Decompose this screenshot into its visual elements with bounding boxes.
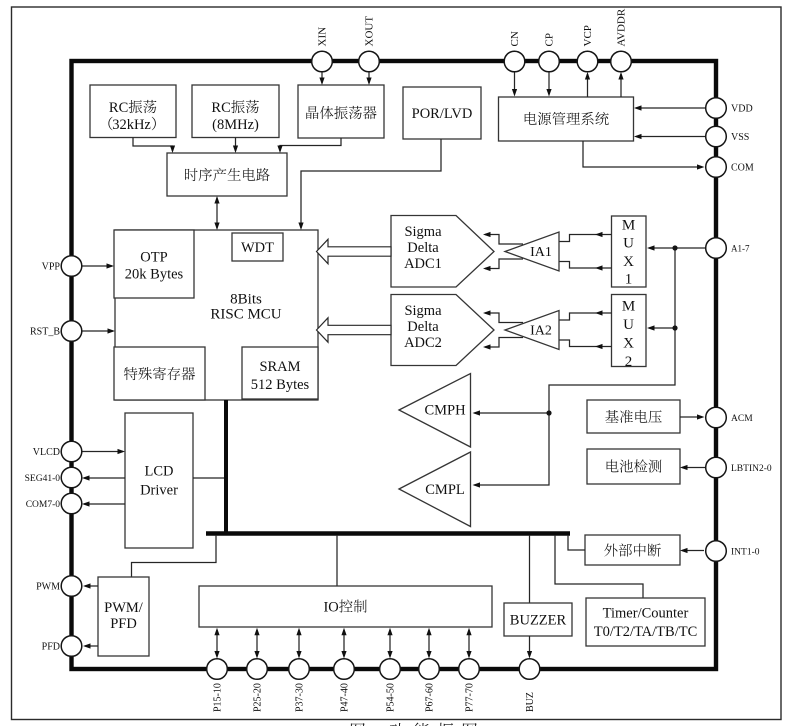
svg-text:RISC MCU: RISC MCU bbox=[210, 307, 281, 323]
svg-text:Sigma: Sigma bbox=[404, 224, 442, 240]
svg-text:RC: RC bbox=[211, 100, 230, 116]
svg-text:OTP: OTP bbox=[140, 250, 167, 266]
svg-text:P15-10: P15-10 bbox=[213, 683, 224, 712]
svg-text:LCD: LCD bbox=[145, 464, 174, 480]
svg-text:U: U bbox=[623, 317, 634, 333]
svg-text:Sigma: Sigma bbox=[404, 303, 442, 319]
svg-text:P54-50: P54-50 bbox=[386, 683, 397, 712]
svg-text:512 Bytes: 512 Bytes bbox=[251, 377, 310, 393]
svg-text:COM: COM bbox=[731, 163, 754, 174]
svg-text:VCP: VCP bbox=[582, 25, 594, 46]
svg-text:SEG41-0: SEG41-0 bbox=[25, 474, 61, 484]
svg-text:Timer/Counter: Timer/Counter bbox=[603, 606, 689, 622]
svg-text:WDT: WDT bbox=[241, 240, 274, 256]
svg-text:M: M bbox=[622, 218, 635, 234]
svg-text:P67-60: P67-60 bbox=[425, 683, 436, 712]
svg-text:32kHz: 32kHz bbox=[112, 117, 151, 133]
svg-text:PWM: PWM bbox=[36, 582, 60, 593]
svg-text:AVDDR: AVDDR bbox=[616, 8, 628, 46]
svg-text:SRAM: SRAM bbox=[259, 359, 300, 375]
svg-text:T0/T2/TA/TB/TC: T0/T2/TA/TB/TC bbox=[594, 624, 698, 640]
svg-text:RC: RC bbox=[109, 100, 128, 116]
svg-text:CP: CP bbox=[544, 33, 556, 46]
svg-text:Driver: Driver bbox=[140, 483, 178, 499]
svg-text:A1-7: A1-7 bbox=[731, 244, 750, 254]
svg-text:Delta: Delta bbox=[407, 319, 439, 335]
svg-text:U: U bbox=[623, 236, 634, 252]
svg-text:20k Bytes: 20k Bytes bbox=[125, 267, 184, 283]
svg-text:BUZZER: BUZZER bbox=[510, 613, 567, 629]
svg-text:COM7-0: COM7-0 bbox=[26, 500, 61, 510]
svg-text:BUZ: BUZ bbox=[525, 692, 536, 712]
svg-text:VLCD: VLCD bbox=[33, 447, 60, 458]
svg-text:ACM: ACM bbox=[731, 414, 753, 424]
svg-text:ADC2: ADC2 bbox=[404, 335, 442, 351]
svg-text:POR/LVD: POR/LVD bbox=[412, 106, 473, 122]
svg-text:2: 2 bbox=[625, 354, 633, 370]
svg-text:VDD: VDD bbox=[731, 104, 753, 115]
svg-text:CN: CN bbox=[509, 31, 521, 46]
svg-text:X: X bbox=[623, 254, 634, 270]
svg-text:P47-40: P47-40 bbox=[340, 683, 351, 712]
svg-text:ADC1: ADC1 bbox=[404, 256, 442, 272]
svg-text:CMPL: CMPL bbox=[425, 482, 465, 498]
svg-text:LBTIN2-0: LBTIN2-0 bbox=[731, 464, 772, 474]
svg-text:(8MHz): (8MHz) bbox=[212, 117, 259, 133]
svg-text:PFD: PFD bbox=[42, 642, 60, 653]
svg-text:IA2: IA2 bbox=[530, 324, 552, 339]
svg-text:Delta: Delta bbox=[407, 240, 439, 256]
svg-text:PWM/: PWM/ bbox=[104, 600, 144, 616]
svg-text:M: M bbox=[622, 299, 635, 315]
svg-text:1: 1 bbox=[625, 272, 633, 288]
svg-text:VPP: VPP bbox=[42, 262, 61, 273]
svg-text:P37-30: P37-30 bbox=[295, 683, 306, 712]
svg-text:IA1: IA1 bbox=[530, 245, 552, 260]
svg-text:X: X bbox=[623, 336, 634, 352]
svg-text:IO: IO bbox=[323, 600, 338, 616]
svg-text:INT1-0: INT1-0 bbox=[731, 548, 760, 558]
svg-text:PFD: PFD bbox=[110, 616, 137, 632]
svg-text:XIN: XIN bbox=[317, 27, 329, 47]
svg-text:XOUT: XOUT bbox=[364, 16, 376, 47]
svg-text:VSS: VSS bbox=[731, 132, 749, 143]
svg-text:CMPH: CMPH bbox=[424, 403, 466, 419]
svg-text:P77-70: P77-70 bbox=[465, 683, 476, 712]
svg-text:RST_B: RST_B bbox=[30, 327, 60, 338]
svg-text:P25-20: P25-20 bbox=[253, 683, 264, 712]
svg-text:8Bits: 8Bits bbox=[230, 292, 262, 308]
